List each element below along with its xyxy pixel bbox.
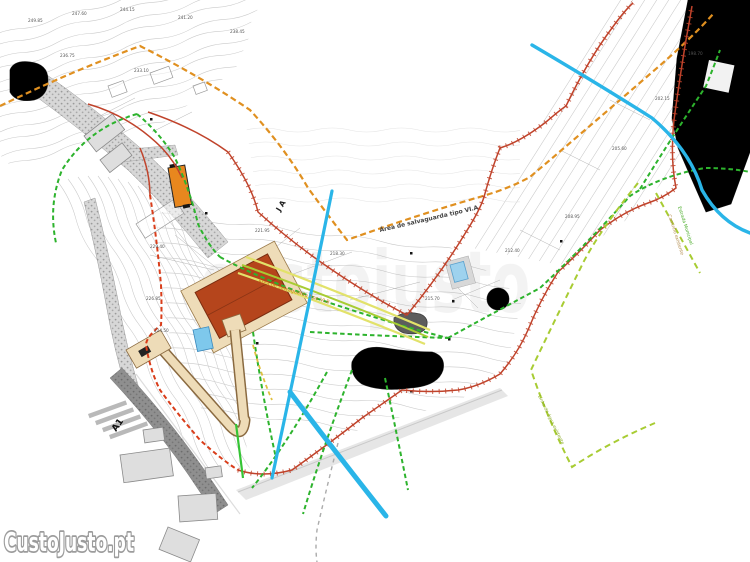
- parcel-label: J A: [274, 199, 288, 214]
- svg-text:202.15: 202.15: [655, 96, 670, 101]
- svg-text:241.20: 241.20: [178, 15, 193, 20]
- svg-text:244.15: 244.15: [120, 7, 135, 12]
- water-note-label: Linha de água existente: [536, 394, 566, 446]
- svg-text:215.70: 215.70: [425, 296, 440, 301]
- custojusto-logo: CustoJusto.pt: [4, 528, 134, 558]
- contour-field-upper-middle: [246, 128, 532, 202]
- svg-text:247.60: 247.60: [72, 11, 87, 16]
- svg-text:205.60: 205.60: [612, 146, 627, 151]
- svg-text:221.95: 221.95: [255, 228, 270, 233]
- svg-text:226.85: 226.85: [146, 296, 161, 301]
- cobbled-road-upper: [30, 70, 228, 258]
- dark-road-band-top-right: [672, 0, 750, 212]
- terrain-edge-line: [238, 390, 502, 492]
- svg-text:233.10: 233.10: [134, 68, 149, 73]
- cobbled-road-left: [84, 198, 140, 396]
- svg-text:224.50: 224.50: [154, 328, 169, 333]
- svg-text:218.30: 218.30: [330, 251, 345, 256]
- svg-text:212.40: 212.40: [505, 248, 520, 253]
- terrain-edge-band: [236, 388, 508, 500]
- safeguard-a-label: Área de salvaguarda tipo VI.A: [379, 204, 479, 234]
- small-outbuilding: [126, 330, 171, 368]
- svg-text:198.70: 198.70: [688, 51, 703, 56]
- svg-text:229.40: 229.40: [150, 244, 165, 249]
- site-plan-map: custojusto: [0, 0, 750, 562]
- svg-text:249.85: 249.85: [28, 18, 43, 23]
- rock-blob-top-left: [10, 62, 48, 101]
- lower-road-kerb: [136, 374, 240, 514]
- svg-text:208.95: 208.95: [565, 214, 580, 219]
- svg-text:238.45: 238.45: [230, 29, 245, 34]
- svg-text:236.75: 236.75: [60, 53, 75, 58]
